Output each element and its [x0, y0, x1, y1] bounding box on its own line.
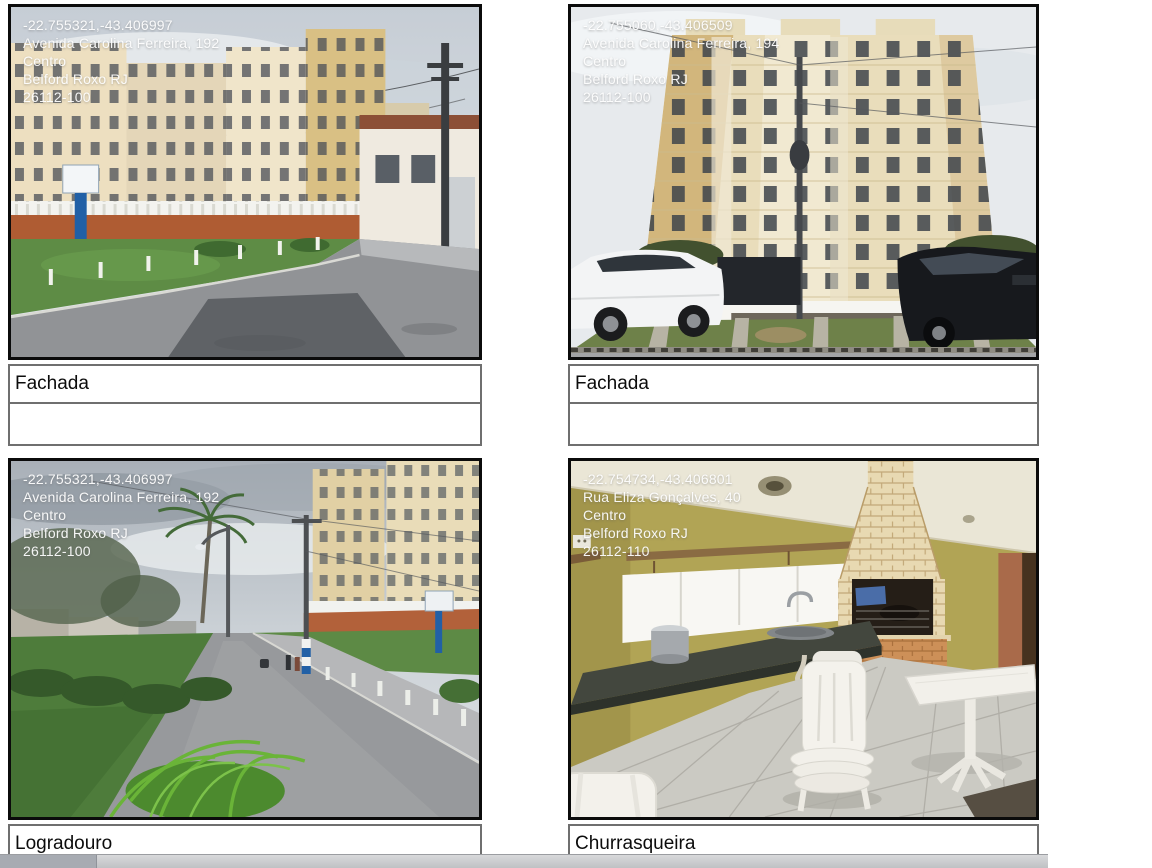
photo-caption-fachada-1: Fachada [8, 364, 482, 404]
geotag-coordinates: -22.755060,-43.406509 [583, 16, 779, 34]
geotag-coordinates: -22.754734,-43.406801 [583, 470, 741, 488]
geotag-district: Centro [23, 506, 219, 524]
geotag-district: Centro [583, 52, 779, 70]
geotag-coordinates: -22.755321,-43.406997 [23, 16, 219, 34]
geotag-overlay: -22.755321,-43.406997 Avenida Carolina F… [23, 16, 219, 106]
caption-notes-box-1 [8, 404, 482, 446]
geotag-cep: 26112-100 [23, 88, 219, 106]
caption-text: Churrasqueira [575, 833, 695, 854]
geotag-street: Avenida Carolina Ferreira, 194 [583, 34, 779, 52]
geotag-city: Belford Roxo RJ [583, 70, 779, 88]
caption-text: Logradouro [15, 833, 112, 854]
geotag-district: Centro [583, 506, 741, 524]
photo-fachada-2: -22.755060,-43.406509 Avenida Carolina F… [568, 4, 1039, 360]
geotag-district: Centro [23, 52, 219, 70]
horizontal-scrollbar[interactable] [0, 854, 1048, 868]
geotag-overlay: -22.755060,-43.406509 Avenida Carolina F… [583, 16, 779, 106]
caption-text: Fachada [575, 373, 649, 394]
geotag-cep: 26112-100 [583, 88, 779, 106]
photo-fachada-1: -22.755321,-43.406997 Avenida Carolina F… [8, 4, 482, 360]
geotag-city: Belford Roxo RJ [23, 70, 219, 88]
photo-churrasqueira: -22.754734,-43.406801 Rua Eliza Gonçalve… [568, 458, 1039, 820]
property-photo-report-page: -22.755321,-43.406997 Avenida Carolina F… [0, 0, 1152, 868]
geotag-street: Avenida Carolina Ferreira, 192 [23, 488, 219, 506]
geotag-city: Belford Roxo RJ [583, 524, 741, 542]
geotag-cep: 26112-110 [583, 542, 741, 560]
caption-text: Fachada [15, 373, 89, 394]
geotag-cep: 26112-100 [23, 542, 219, 560]
geotag-overlay: -22.755321,-43.406997 Avenida Carolina F… [23, 470, 219, 560]
photo-logradouro: -22.755321,-43.406997 Avenida Carolina F… [8, 458, 482, 820]
geotag-overlay: -22.754734,-43.406801 Rua Eliza Gonçalve… [583, 470, 741, 560]
geotag-city: Belford Roxo RJ [23, 524, 219, 542]
caption-notes-box-2 [568, 404, 1039, 446]
geotag-coordinates: -22.755321,-43.406997 [23, 470, 219, 488]
photo-caption-fachada-2: Fachada [568, 364, 1039, 404]
geotag-street: Rua Eliza Gonçalves, 40 [583, 488, 741, 506]
geotag-street: Avenida Carolina Ferreira, 192 [23, 34, 219, 52]
scrollbar-thumb[interactable] [0, 855, 97, 868]
